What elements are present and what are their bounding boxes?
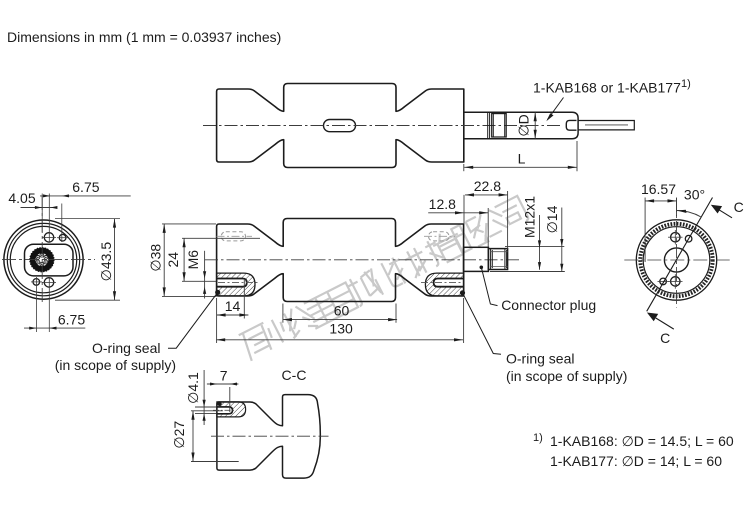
svg-text:16.57: 16.57 bbox=[641, 181, 676, 197]
svg-text:C-C: C-C bbox=[282, 367, 307, 383]
svg-text:60: 60 bbox=[334, 303, 350, 319]
svg-text:1-KAB168: ∅D = 14.5; L = 60: 1-KAB168: ∅D = 14.5; L = 60 bbox=[550, 433, 734, 449]
svg-text:6.75: 6.75 bbox=[58, 311, 85, 327]
svg-text:∅4.1: ∅4.1 bbox=[185, 372, 201, 404]
svg-text:C: C bbox=[734, 199, 744, 215]
svg-text:1-KAB177: ∅D = 14; L = 60: 1-KAB177: ∅D = 14; L = 60 bbox=[550, 453, 722, 469]
svg-text:O-ring seal: O-ring seal bbox=[92, 340, 160, 356]
svg-text:130: 130 bbox=[329, 321, 353, 337]
svg-text:Connector plug: Connector plug bbox=[501, 297, 596, 313]
svg-text:∅38: ∅38 bbox=[147, 244, 163, 272]
svg-text:14: 14 bbox=[225, 298, 241, 314]
svg-text:24: 24 bbox=[165, 252, 181, 268]
svg-text:Dimensions in mm (1 mm = 0.039: Dimensions in mm (1 mm = 0.03937 inches) bbox=[7, 29, 281, 45]
svg-text:M6: M6 bbox=[185, 250, 201, 270]
svg-text:L: L bbox=[518, 150, 526, 166]
svg-text:1): 1) bbox=[533, 432, 543, 444]
svg-text:1-KAB168 or 1-KAB177: 1-KAB168 or 1-KAB177 bbox=[533, 79, 681, 95]
svg-text:O-ring seal: O-ring seal bbox=[506, 351, 574, 367]
svg-text:M12x1: M12x1 bbox=[521, 196, 537, 238]
svg-text:∅27: ∅27 bbox=[171, 421, 187, 449]
svg-text:∅43.5: ∅43.5 bbox=[98, 242, 114, 282]
svg-text:1): 1) bbox=[681, 78, 691, 90]
svg-text:∅14: ∅14 bbox=[544, 205, 560, 233]
svg-text:∅D: ∅D bbox=[515, 114, 531, 136]
svg-text:(in scope of supply): (in scope of supply) bbox=[506, 368, 627, 384]
svg-text:C: C bbox=[660, 330, 670, 346]
svg-text:7: 7 bbox=[220, 368, 228, 384]
svg-text:(in scope of supply): (in scope of supply) bbox=[55, 357, 176, 373]
svg-text:12.8: 12.8 bbox=[429, 196, 456, 212]
svg-text:22.8: 22.8 bbox=[474, 178, 501, 194]
svg-text:30°: 30° bbox=[684, 187, 705, 203]
svg-text:6.75: 6.75 bbox=[72, 179, 99, 195]
svg-text:4.05: 4.05 bbox=[8, 190, 35, 206]
